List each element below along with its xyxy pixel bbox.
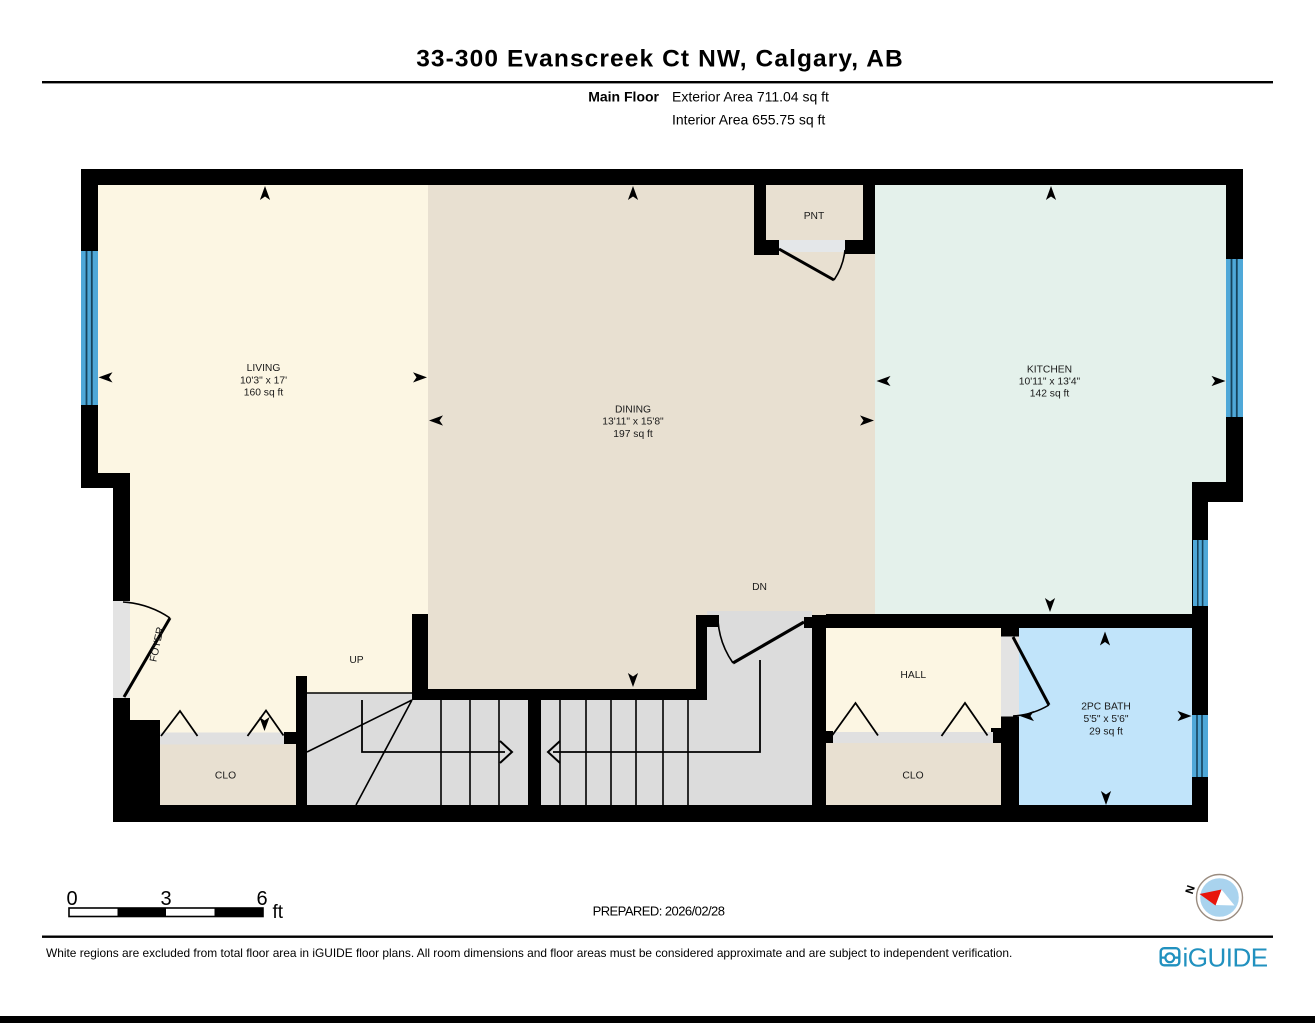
svg-text:33-300 Evanscreek Ct NW, Calga: 33-300 Evanscreek Ct NW, Calgary, AB: [416, 46, 904, 73]
svg-text:UP: UP: [349, 655, 363, 666]
svg-text:DINING: DINING: [615, 404, 651, 415]
svg-text:iGUIDE: iGUIDE: [1183, 943, 1268, 973]
svg-text:3: 3: [160, 888, 171, 910]
svg-text:PREPARED: 2026/02/28: PREPARED: 2026/02/28: [593, 904, 725, 919]
svg-text:0: 0: [66, 888, 77, 910]
svg-text:Exterior Area 711.04 sq ft: Exterior Area 711.04 sq ft: [672, 89, 829, 105]
svg-text:6: 6: [256, 888, 267, 910]
svg-text:LIVING: LIVING: [247, 363, 281, 374]
svg-text:HALL: HALL: [900, 670, 926, 681]
svg-text:CLO: CLO: [902, 771, 923, 782]
svg-text:Interior Area 655.75 sq ft: Interior Area 655.75 sq ft: [672, 112, 825, 128]
svg-text:29 sq ft: 29 sq ft: [1089, 727, 1123, 738]
svg-text:10'3" x 17': 10'3" x 17': [240, 375, 287, 386]
svg-text:2PC BATH: 2PC BATH: [1081, 702, 1131, 713]
svg-text:White regions are excluded fro: White regions are excluded from total fl…: [46, 946, 1012, 960]
svg-text:CLO: CLO: [215, 771, 236, 782]
svg-text:PNT: PNT: [804, 211, 825, 222]
svg-text:142 sq ft: 142 sq ft: [1030, 389, 1070, 400]
svg-text:197 sq ft: 197 sq ft: [613, 429, 653, 440]
svg-text:DN: DN: [752, 582, 767, 593]
svg-text:13'11" x 15'8": 13'11" x 15'8": [602, 417, 664, 428]
svg-text:KITCHEN: KITCHEN: [1027, 364, 1072, 375]
svg-text:10'11" x 13'4": 10'11" x 13'4": [1019, 377, 1081, 388]
svg-text:160 sq ft: 160 sq ft: [244, 388, 284, 399]
svg-text:5'5" x 5'6": 5'5" x 5'6": [1083, 714, 1128, 725]
svg-text:Main Floor: Main Floor: [588, 89, 659, 105]
svg-text:ft: ft: [273, 902, 284, 923]
